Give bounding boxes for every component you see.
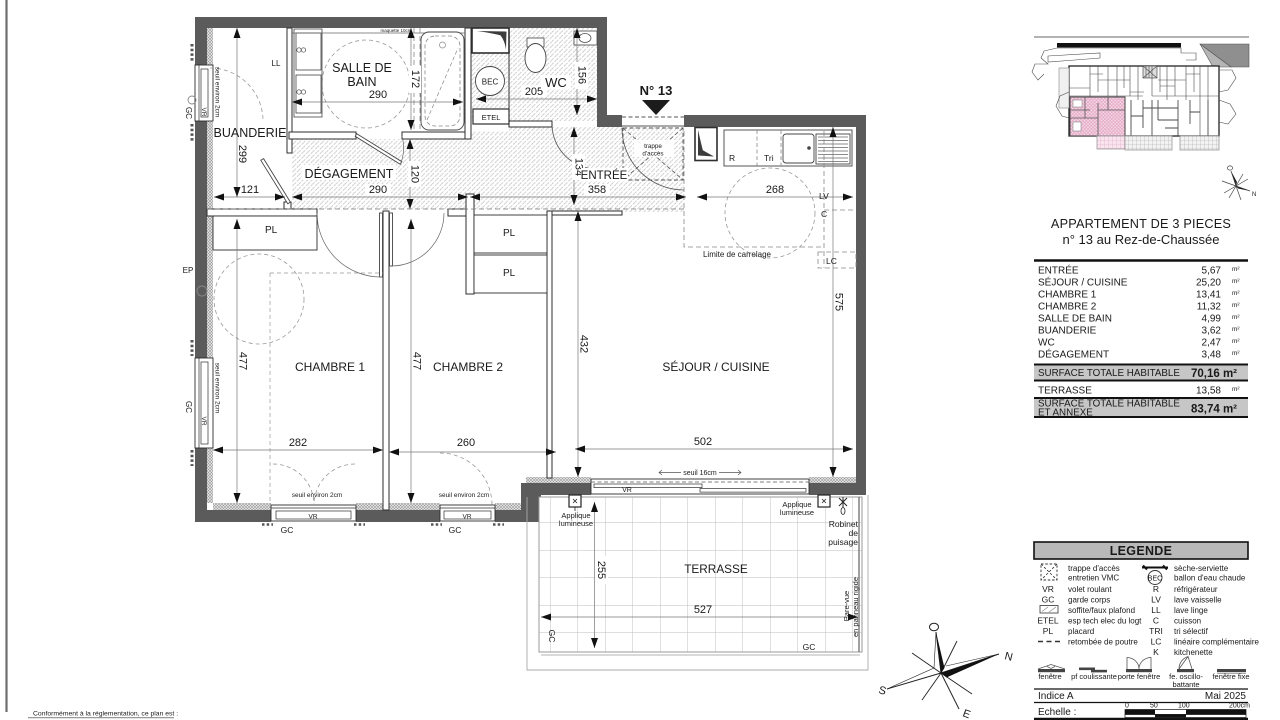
svg-text:garde corps: garde corps bbox=[1068, 596, 1110, 605]
svg-text:VR: VR bbox=[1042, 584, 1054, 594]
svg-text:m²: m² bbox=[1232, 326, 1240, 333]
svg-text:retombée de poutre: retombée de poutre bbox=[1068, 638, 1138, 647]
svg-text:esp tech elec du logt: esp tech elec du logt bbox=[1068, 617, 1142, 626]
svg-text:R: R bbox=[729, 153, 735, 163]
svg-text:SALLE DE BAIN: SALLE DE BAIN bbox=[1038, 314, 1112, 325]
svg-text:172: 172 bbox=[409, 70, 421, 88]
svg-text:260: 260 bbox=[457, 437, 475, 449]
svg-text:PL: PL bbox=[265, 225, 278, 236]
svg-text:placard: placard bbox=[1068, 627, 1094, 636]
svg-text:SALLE DE: SALLE DE bbox=[332, 61, 392, 75]
svg-text:ET ANNEXE: ET ANNEXE bbox=[1038, 408, 1093, 419]
svg-text:LC: LC bbox=[1151, 637, 1162, 647]
svg-text:VR: VR bbox=[200, 107, 207, 116]
svg-text:lumineuse: lumineuse bbox=[780, 508, 814, 517]
svg-text:83,74 m²: 83,74 m² bbox=[1191, 404, 1237, 416]
svg-text:LL: LL bbox=[272, 59, 281, 68]
svg-text:BAIN: BAIN bbox=[347, 75, 376, 89]
svg-text:Indice A: Indice A bbox=[1038, 691, 1074, 702]
svg-text:432: 432 bbox=[578, 335, 590, 353]
svg-text:BUANDERIE: BUANDERIE bbox=[214, 126, 287, 140]
svg-text:SURFACE TOTALE HABITABLE: SURFACE TOTALE HABITABLE bbox=[1038, 368, 1180, 379]
svg-text:13,41: 13,41 bbox=[1196, 290, 1221, 301]
svg-text:d'accès: d'accès bbox=[642, 151, 663, 158]
svg-text:GC: GC bbox=[184, 107, 193, 119]
svg-text:m²: m² bbox=[1232, 302, 1240, 309]
svg-text:502: 502 bbox=[694, 436, 712, 448]
svg-text:477: 477 bbox=[237, 352, 249, 370]
svg-text:VR: VR bbox=[200, 416, 207, 425]
svg-text:ETEL: ETEL bbox=[1037, 616, 1059, 626]
svg-text:entretien VMC: entretien VMC bbox=[1068, 574, 1119, 583]
svg-text:Mai 2025: Mai 2025 bbox=[1205, 691, 1247, 702]
svg-text:575: 575 bbox=[833, 293, 845, 311]
svg-text:2,47: 2,47 bbox=[1202, 338, 1222, 349]
svg-text:n° 13 au Rez-de-Chaussée: n° 13 au Rez-de-Chaussée bbox=[1063, 232, 1220, 247]
svg-text:ENTRÉE: ENTRÉE bbox=[581, 169, 628, 182]
svg-text:358: 358 bbox=[588, 184, 606, 196]
svg-text:120: 120 bbox=[409, 165, 421, 183]
svg-text:268: 268 bbox=[766, 184, 784, 196]
svg-text:N° 13: N° 13 bbox=[640, 83, 673, 98]
svg-text:GC: GC bbox=[449, 525, 462, 535]
svg-text:seuil environ 2cm: seuil environ 2cm bbox=[439, 492, 490, 499]
svg-text:DÉGAGEMENT: DÉGAGEMENT bbox=[305, 166, 394, 181]
svg-text:EP: EP bbox=[183, 266, 194, 275]
svg-text:LEGENDE: LEGENDE bbox=[1110, 544, 1173, 558]
svg-text:battante: battante bbox=[1172, 680, 1199, 689]
svg-text:LV: LV bbox=[819, 191, 829, 201]
svg-text:Conformément à la réglementati: Conformément à la réglementation, ce pla… bbox=[33, 711, 178, 718]
svg-text:0: 0 bbox=[1125, 703, 1129, 710]
svg-text:BEC: BEC bbox=[1148, 576, 1162, 583]
svg-text:BUANDERIE: BUANDERIE bbox=[1038, 326, 1097, 337]
svg-text:PL: PL bbox=[1043, 626, 1054, 636]
svg-text:volet roulant: volet roulant bbox=[1068, 585, 1112, 594]
svg-text:trappe: trappe bbox=[644, 143, 662, 150]
svg-text:m²: m² bbox=[1232, 278, 1240, 285]
svg-text:CHAMBRE 1: CHAMBRE 1 bbox=[295, 360, 365, 374]
svg-text:LV: LV bbox=[1151, 595, 1161, 605]
svg-text:CHAMBRE 2: CHAMBRE 2 bbox=[1038, 302, 1097, 313]
svg-text:ballon d'eau chaude: ballon d'eau chaude bbox=[1174, 574, 1246, 583]
svg-text:TRI: TRI bbox=[1149, 626, 1163, 636]
svg-text:fenêtre: fenêtre bbox=[1038, 672, 1061, 681]
svg-text:m²: m² bbox=[1232, 266, 1240, 273]
svg-text:m²: m² bbox=[1232, 338, 1240, 345]
svg-text:13,58: 13,58 bbox=[1196, 386, 1221, 397]
svg-text:APPARTEMENT DE 3 PIECES: APPARTEMENT DE 3 PIECES bbox=[1051, 217, 1231, 231]
svg-text:linéaire complémentaire: linéaire complémentaire bbox=[1174, 638, 1259, 647]
svg-text:5,67: 5,67 bbox=[1202, 266, 1222, 277]
svg-text:puisage: puisage bbox=[828, 537, 858, 547]
svg-text:ENTRÉE: ENTRÉE bbox=[1038, 264, 1079, 277]
svg-text:205: 205 bbox=[525, 86, 543, 98]
svg-text:GC: GC bbox=[184, 401, 193, 413]
svg-text:en panneau rigide: en panneau rigide bbox=[851, 577, 860, 637]
svg-text:GC: GC bbox=[803, 642, 816, 652]
svg-text:GC: GC bbox=[281, 525, 294, 535]
svg-text:LC: LC bbox=[826, 256, 837, 266]
svg-text:3,62: 3,62 bbox=[1202, 326, 1222, 337]
svg-text:m²: m² bbox=[1232, 350, 1240, 357]
svg-text:réfrigérateur: réfrigérateur bbox=[1174, 585, 1218, 594]
svg-text:m²: m² bbox=[1232, 386, 1240, 393]
svg-text:200cm: 200cm bbox=[1229, 703, 1250, 710]
svg-text:4,99: 4,99 bbox=[1202, 314, 1222, 325]
svg-text:seuil environ 2cm: seuil environ 2cm bbox=[214, 67, 221, 118]
svg-text:tri sélectif: tri sélectif bbox=[1174, 627, 1209, 636]
svg-text:299: 299 bbox=[236, 145, 248, 163]
svg-text:Limite de carrelage: Limite de carrelage bbox=[703, 250, 772, 259]
svg-text:R: R bbox=[1153, 584, 1159, 594]
svg-text:N: N bbox=[1252, 192, 1256, 198]
svg-text:PL: PL bbox=[503, 268, 516, 279]
svg-text:lumineuse: lumineuse bbox=[559, 519, 593, 528]
svg-text:K: K bbox=[1153, 647, 1159, 657]
svg-text:TERRASSE: TERRASSE bbox=[684, 562, 748, 576]
svg-text:lave linge: lave linge bbox=[1174, 606, 1208, 615]
svg-text:SÉJOUR / CUISINE: SÉJOUR / CUISINE bbox=[1038, 276, 1128, 289]
svg-text:CHAMBRE 2: CHAMBRE 2 bbox=[433, 360, 503, 374]
svg-text:seuil 16cm: seuil 16cm bbox=[683, 470, 717, 477]
svg-text:Echelle :: Echelle : bbox=[1038, 707, 1076, 718]
svg-text:477: 477 bbox=[411, 352, 423, 370]
svg-text:SÉJOUR / CUISINE: SÉJOUR / CUISINE bbox=[662, 359, 769, 374]
svg-text:trappe d'accès: trappe d'accès bbox=[1068, 564, 1120, 573]
svg-text:C: C bbox=[1153, 616, 1159, 626]
svg-text:sèche-serviette: sèche-serviette bbox=[1174, 564, 1229, 573]
svg-text:LL: LL bbox=[1151, 605, 1161, 615]
svg-text:seuil environ 2cm: seuil environ 2cm bbox=[292, 492, 343, 499]
svg-text:290: 290 bbox=[369, 89, 387, 101]
svg-text:290: 290 bbox=[369, 184, 387, 196]
svg-text:GC: GC bbox=[547, 630, 557, 643]
svg-text:WC: WC bbox=[545, 75, 567, 90]
svg-text:527: 527 bbox=[694, 604, 712, 616]
svg-text:TERRASSE: TERRASSE bbox=[1038, 386, 1092, 397]
svg-text:m²: m² bbox=[1232, 314, 1240, 321]
svg-text:Pare-vue: Pare-vue bbox=[842, 591, 851, 621]
svg-text:25,20: 25,20 bbox=[1196, 278, 1221, 289]
svg-text:255: 255 bbox=[595, 561, 607, 579]
svg-text:kitchenette: kitchenette bbox=[1174, 648, 1213, 657]
svg-text:100: 100 bbox=[1178, 703, 1190, 710]
svg-text:CHAMBRE 1: CHAMBRE 1 bbox=[1038, 290, 1097, 301]
svg-text:ETEL: ETEL bbox=[482, 113, 501, 122]
svg-text:PL: PL bbox=[503, 228, 516, 239]
svg-text:soffite/faux plafond: soffite/faux plafond bbox=[1068, 606, 1135, 615]
svg-text:Tri: Tri bbox=[764, 153, 774, 163]
svg-text:282: 282 bbox=[289, 437, 307, 449]
svg-text:DÉGAGEMENT: DÉGAGEMENT bbox=[1038, 348, 1109, 361]
svg-text:121: 121 bbox=[241, 184, 259, 196]
svg-text:50: 50 bbox=[1150, 703, 1158, 710]
svg-text:porte fenêtre: porte fenêtre bbox=[1118, 672, 1161, 681]
svg-text:pf coulissante: pf coulissante bbox=[1071, 672, 1117, 681]
svg-text:11,32: 11,32 bbox=[1197, 302, 1222, 313]
svg-text:m²: m² bbox=[1232, 290, 1240, 297]
svg-text:cuisson: cuisson bbox=[1174, 617, 1201, 626]
svg-text:WC: WC bbox=[1038, 338, 1055, 349]
svg-text:fenêtre fixe: fenêtre fixe bbox=[1212, 672, 1249, 681]
svg-text:VR: VR bbox=[308, 514, 317, 521]
svg-text:3,48: 3,48 bbox=[1202, 350, 1222, 361]
svg-text:lave vaisselle: lave vaisselle bbox=[1174, 596, 1222, 605]
svg-text:BEC: BEC bbox=[482, 78, 499, 87]
svg-text:GC: GC bbox=[1042, 595, 1055, 605]
svg-text:VR: VR bbox=[622, 487, 632, 494]
svg-text:70,16 m²: 70,16 m² bbox=[1191, 368, 1237, 380]
svg-text:VR: VR bbox=[462, 514, 471, 521]
svg-text:seuil environ 2cm: seuil environ 2cm bbox=[214, 363, 221, 414]
svg-text:maquette 10cm: maquette 10cm bbox=[380, 28, 411, 33]
svg-text:156: 156 bbox=[576, 66, 588, 84]
svg-text:C: C bbox=[821, 209, 827, 219]
